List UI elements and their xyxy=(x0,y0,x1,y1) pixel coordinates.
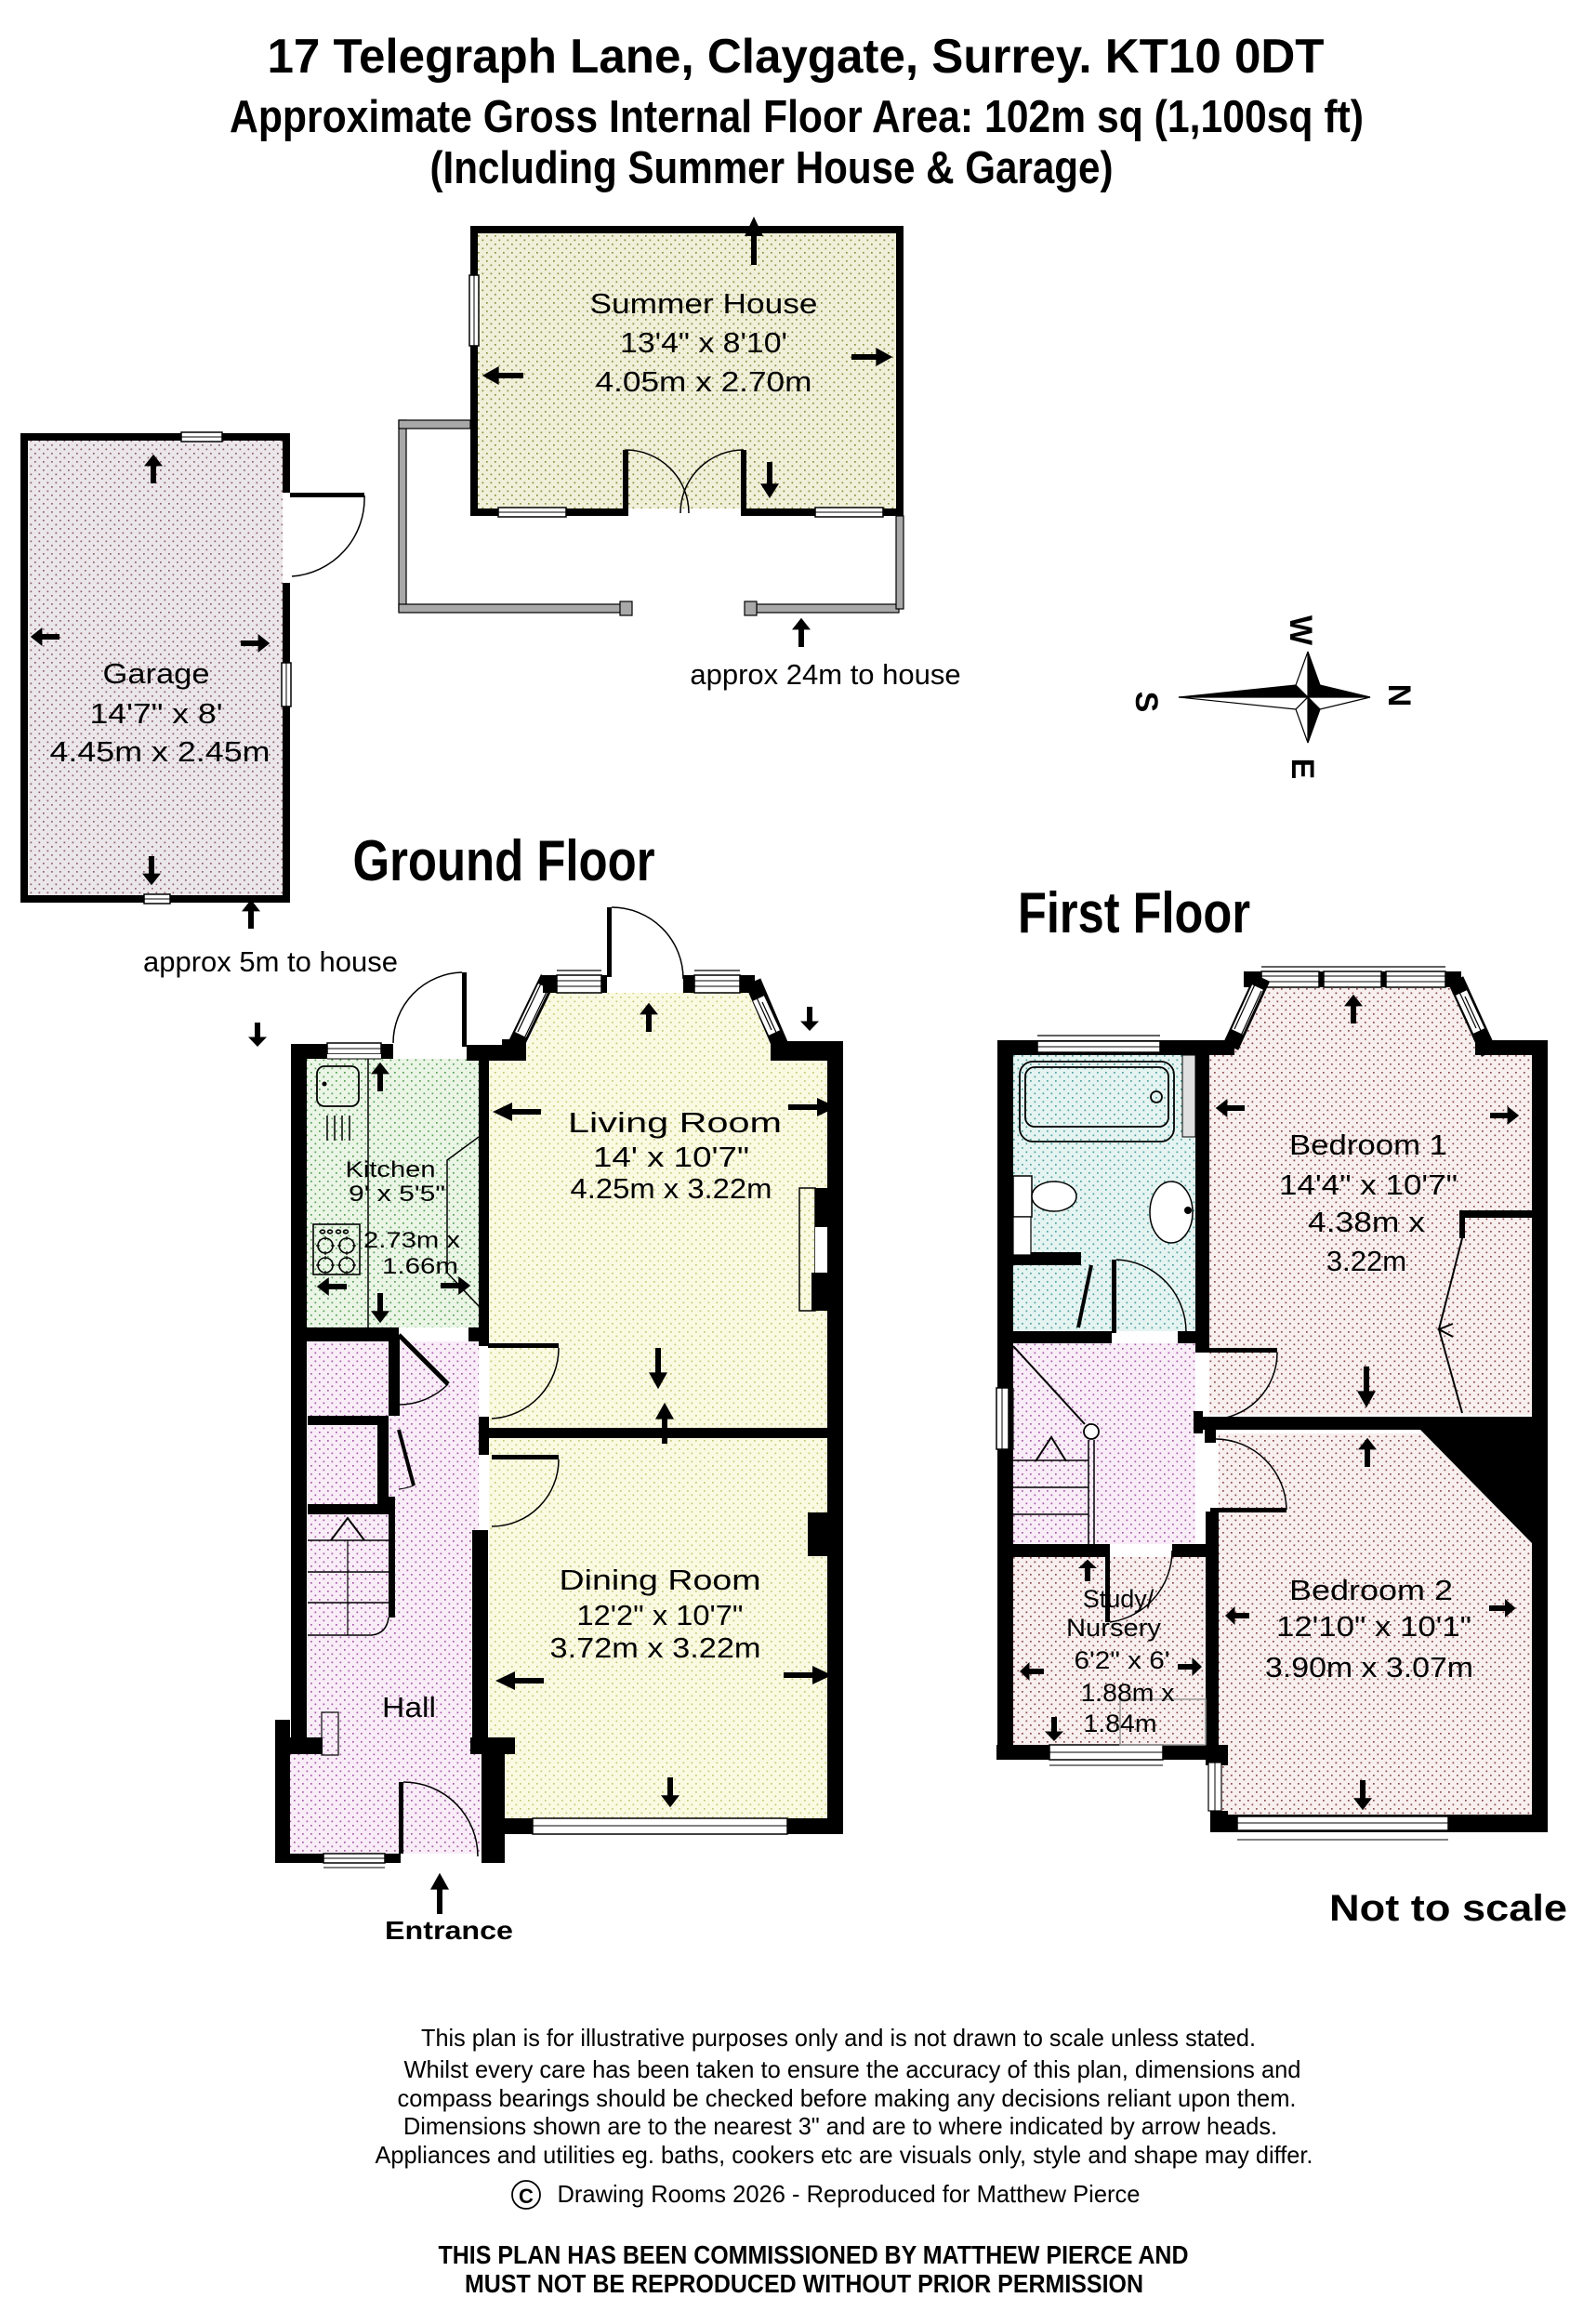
svg-text:N: N xyxy=(1381,684,1417,707)
svg-text:Appliances and utilities eg. b: Appliances and utilities eg. baths, cook… xyxy=(376,2141,1313,2169)
svg-text:17 Telegraph Lane, Claygate, S: 17 Telegraph Lane, Claygate, Surrey. KT1… xyxy=(268,30,1325,84)
svg-text:4.25m x 3.22m: 4.25m x 3.22m xyxy=(571,1172,772,1205)
svg-text:12'2" x 10'7": 12'2" x 10'7" xyxy=(577,1599,744,1631)
svg-text:Approximate Gross Internal Flo: Approximate Gross Internal Floor Area: 1… xyxy=(230,92,1364,142)
svg-text:S: S xyxy=(1128,692,1164,713)
svg-text:Nursery: Nursery xyxy=(1066,1614,1162,1642)
svg-text:Ground Floor: Ground Floor xyxy=(353,829,655,893)
svg-text:Living Room: Living Room xyxy=(568,1106,782,1139)
svg-text:Hall: Hall xyxy=(382,1691,436,1723)
svg-text:Whilst every care has been tak: Whilst every care has been taken to ensu… xyxy=(404,2055,1301,2083)
svg-text:3.72m x 3.22m: 3.72m x 3.22m xyxy=(550,1631,761,1664)
svg-text:Entrance: Entrance xyxy=(385,1916,513,1945)
svg-text:Dining Room: Dining Room xyxy=(560,1564,761,1596)
svg-text:Garage: Garage xyxy=(103,657,210,690)
svg-text:3.22m: 3.22m xyxy=(1326,1245,1406,1277)
svg-text:This plan is for illustrative: This plan is for illustrative purposes o… xyxy=(421,2024,1256,2052)
svg-text:MUST NOT BE REPRODUCED WITHOUT: MUST NOT BE REPRODUCED WITHOUT PRIOR PER… xyxy=(465,2269,1143,2298)
svg-text:1.66m: 1.66m xyxy=(382,1254,458,1279)
svg-text:compass bearings should be che: compass bearings should be checked befor… xyxy=(398,2084,1297,2112)
svg-text:2.73m x: 2.73m x xyxy=(363,1228,460,1253)
svg-text:9' x 5'5": 9' x 5'5" xyxy=(349,1182,445,1207)
svg-text:Bedroom 1: Bedroom 1 xyxy=(1289,1129,1447,1161)
svg-text:4.38m x: 4.38m x xyxy=(1308,1206,1426,1238)
svg-text:Bedroom 2: Bedroom 2 xyxy=(1289,1574,1453,1606)
svg-text:Study/: Study/ xyxy=(1083,1585,1154,1613)
svg-text:14'4" x 10'7": 14'4" x 10'7" xyxy=(1279,1169,1458,1201)
svg-text:1.84m: 1.84m xyxy=(1084,1710,1157,1737)
svg-text:approx 5m to house: approx 5m to house xyxy=(143,945,398,978)
svg-text:(Including Summer House & Gara: (Including Summer House & Garage) xyxy=(430,143,1114,193)
svg-text:Drawing Rooms 2026 - Reproduce: Drawing Rooms 2026 - Reproduced for Matt… xyxy=(558,2180,1141,2208)
svg-text:W: W xyxy=(1283,615,1318,646)
svg-text:4.05m x 2.70m: 4.05m x 2.70m xyxy=(596,365,812,398)
svg-text:Not to scale: Not to scale xyxy=(1329,1888,1567,1929)
svg-text:1.88m x: 1.88m x xyxy=(1081,1679,1176,1707)
svg-text:Kitchen: Kitchen xyxy=(346,1157,436,1182)
svg-text:13'4" x 8'10': 13'4" x 8'10' xyxy=(620,326,787,359)
svg-text:E: E xyxy=(1285,759,1320,780)
svg-text:4.45m x 2.45m: 4.45m x 2.45m xyxy=(50,735,270,768)
svg-text:6'2" x 6': 6'2" x 6' xyxy=(1075,1646,1170,1674)
svg-text:C: C xyxy=(519,2185,534,2208)
svg-text:First Floor: First Floor xyxy=(1018,881,1250,945)
svg-text:Dimensions shown are to the ne: Dimensions shown are to the nearest 3" a… xyxy=(403,2112,1277,2140)
svg-text:14' x 10'7": 14' x 10'7" xyxy=(593,1141,749,1173)
svg-text:12'10" x 10'1": 12'10" x 10'1" xyxy=(1276,1610,1471,1643)
svg-text:3.90m x 3.07m: 3.90m x 3.07m xyxy=(1265,1651,1473,1684)
svg-text:THIS PLAN HAS BEEN COMMISSIONE: THIS PLAN HAS BEEN COMMISSIONED BY MATTH… xyxy=(439,2240,1189,2269)
svg-text:Summer House: Summer House xyxy=(590,287,818,320)
svg-text:14'7" x 8': 14'7" x 8' xyxy=(90,697,223,730)
svg-text:approx 24m to house: approx 24m to house xyxy=(690,658,960,691)
